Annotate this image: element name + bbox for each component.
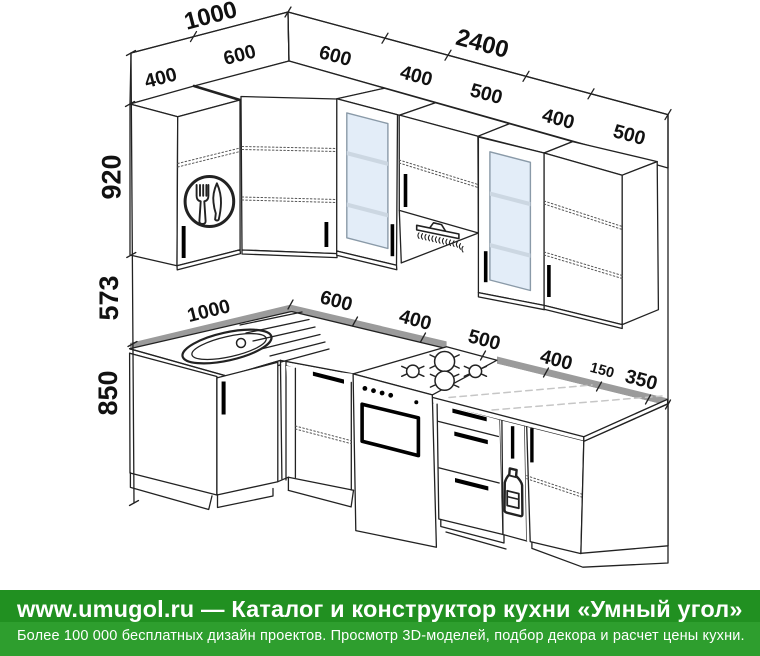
svg-text:400: 400 (397, 305, 434, 335)
svg-text:573: 573 (94, 275, 124, 320)
svg-text:2400: 2400 (453, 24, 512, 64)
svg-text:850: 850 (93, 370, 123, 415)
svg-text:920: 920 (97, 154, 127, 199)
svg-text:600: 600 (318, 286, 355, 316)
svg-text:500: 500 (466, 325, 503, 355)
svg-text:150: 150 (588, 360, 616, 382)
